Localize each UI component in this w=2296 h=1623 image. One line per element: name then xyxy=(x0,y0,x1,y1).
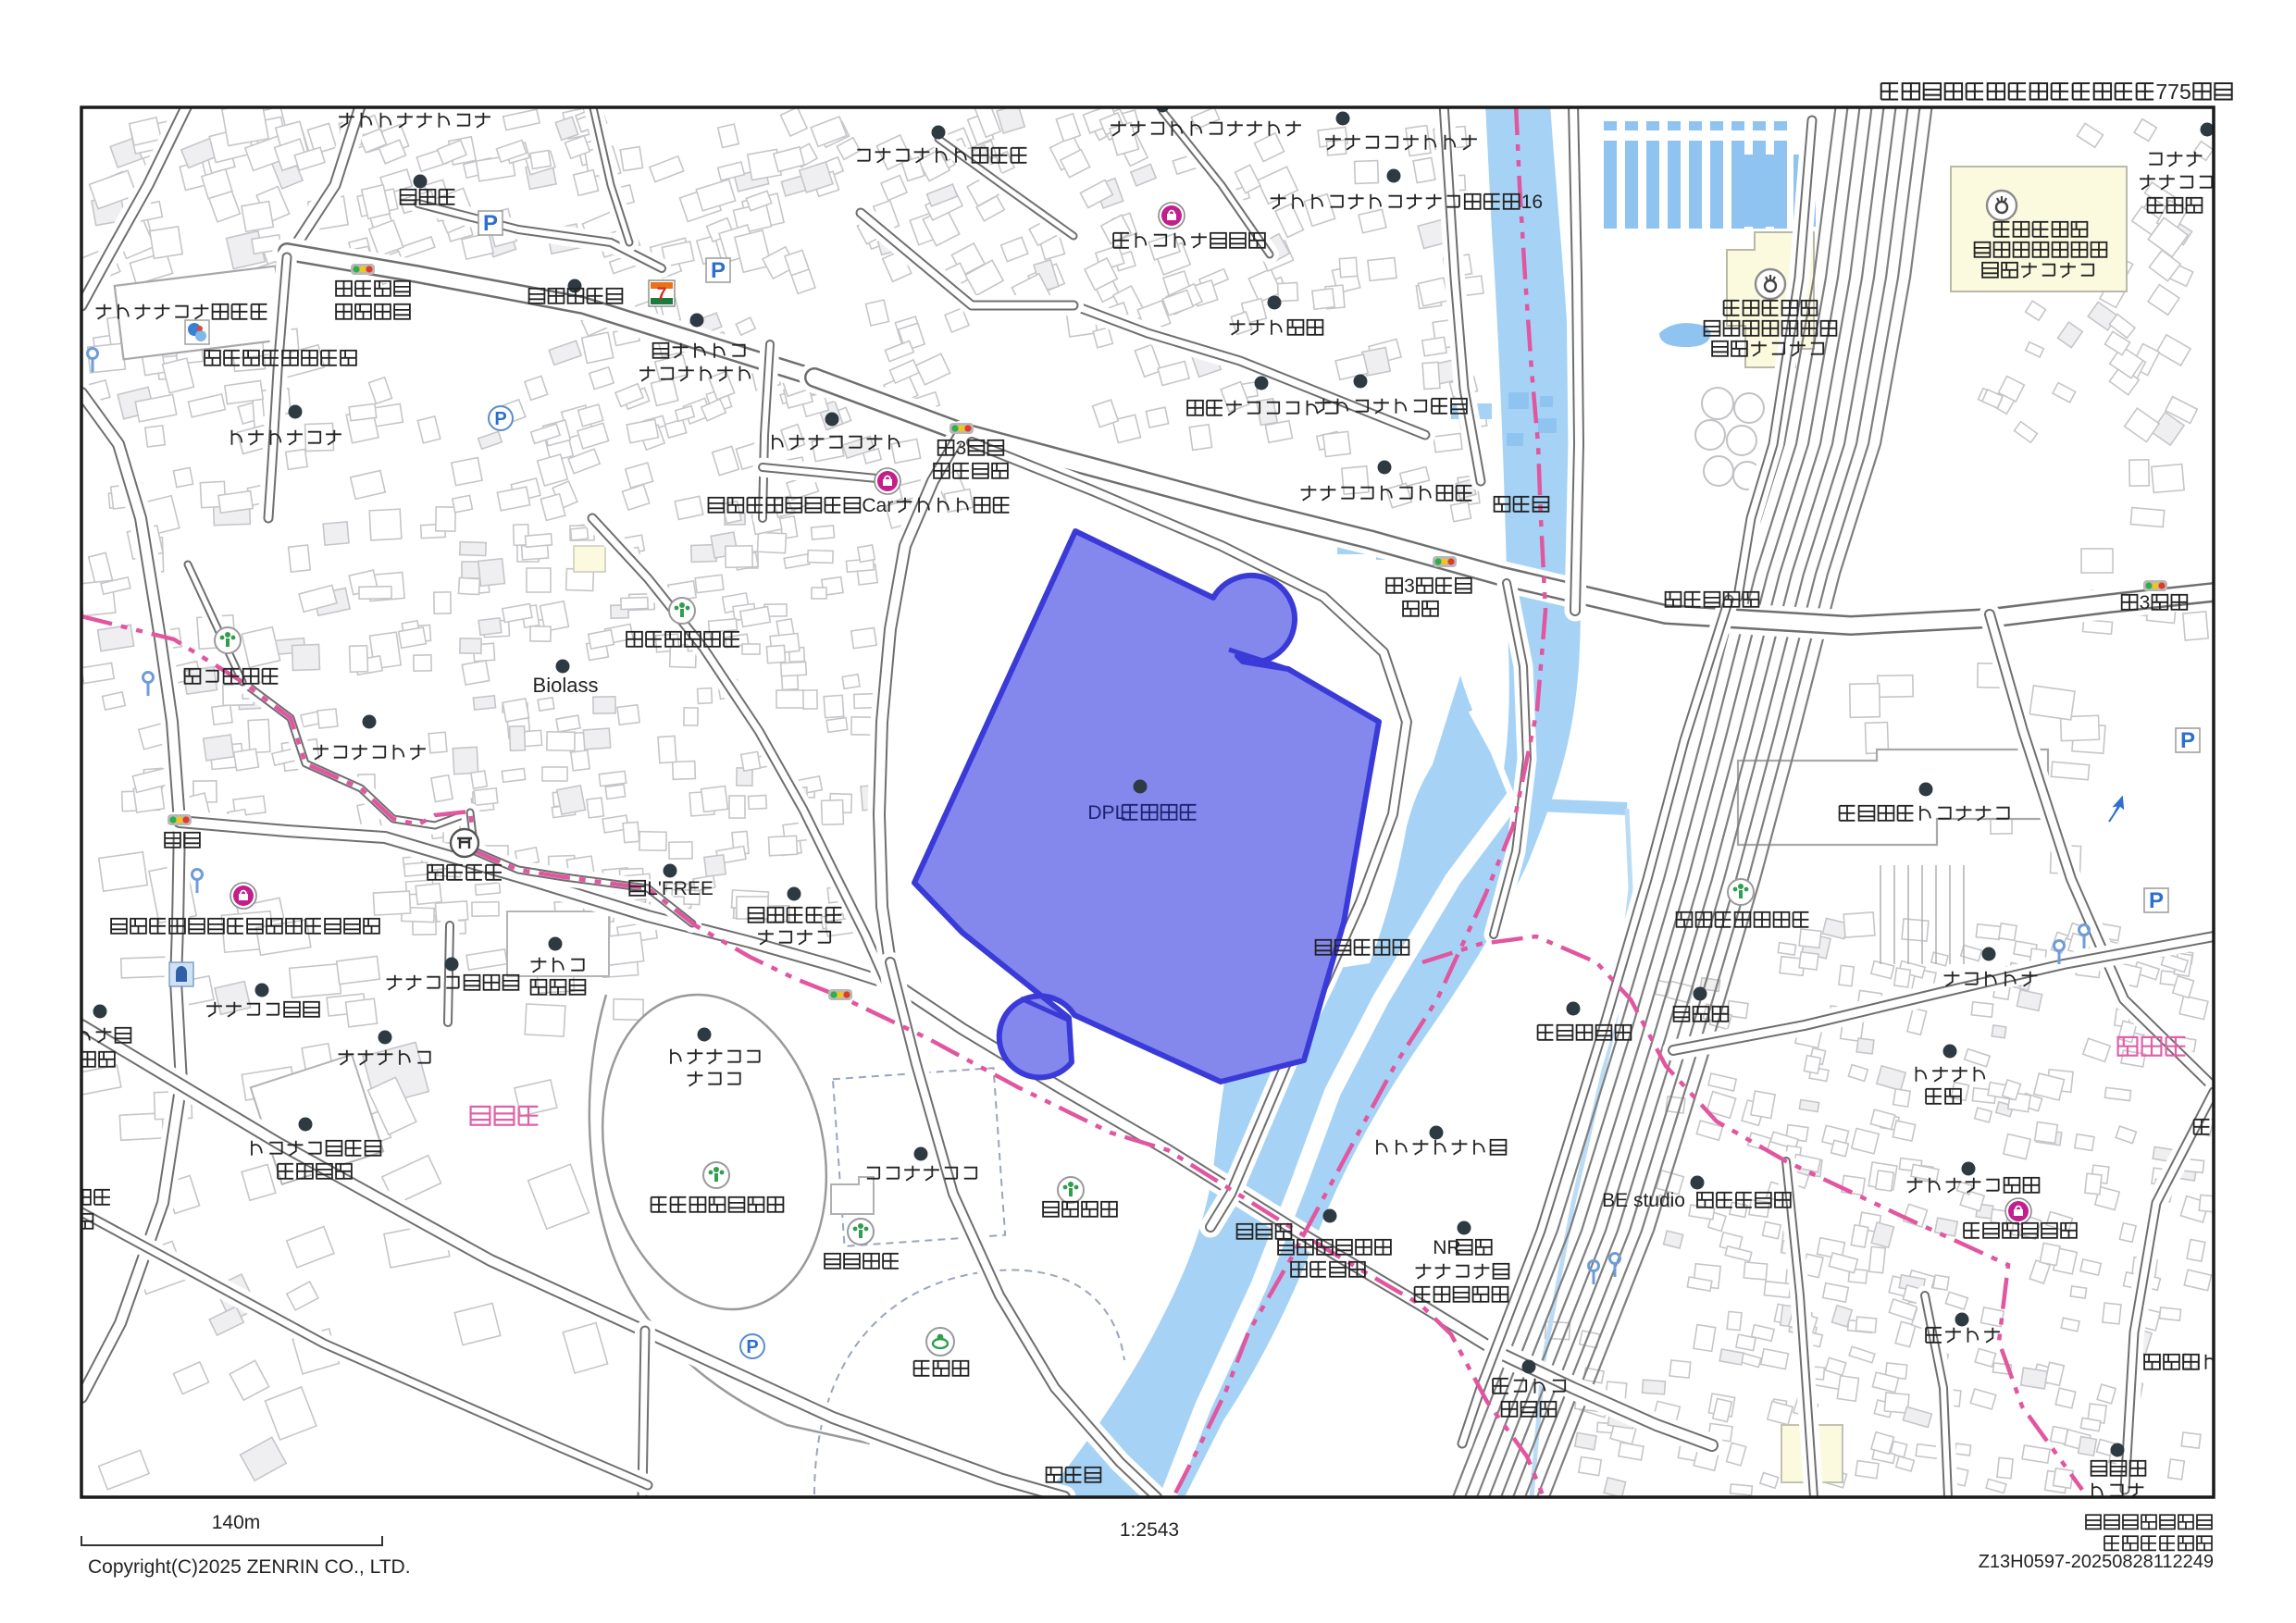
svg-text:BE studio: BE studio xyxy=(1602,1190,1685,1211)
svg-text:775: 775 xyxy=(2155,80,2191,104)
svg-text:DPL: DPL xyxy=(1087,802,1125,824)
svg-text:P: P xyxy=(711,258,726,283)
svg-text:7: 7 xyxy=(657,285,667,304)
svg-text:P: P xyxy=(494,409,506,429)
svg-text:Biolass: Biolass xyxy=(533,674,599,697)
svg-text:140m: 140m xyxy=(212,1512,261,1533)
svg-text:P: P xyxy=(483,211,498,236)
svg-text:1:2543: 1:2543 xyxy=(1120,1519,1179,1541)
svg-text:3: 3 xyxy=(2140,592,2151,613)
svg-text:P: P xyxy=(2180,728,2195,753)
svg-text:Car: Car xyxy=(862,495,893,516)
svg-text:3: 3 xyxy=(1404,576,1415,597)
svg-text:P: P xyxy=(746,1337,758,1357)
svg-text:3: 3 xyxy=(956,438,967,459)
svg-text:16: 16 xyxy=(1521,192,1543,213)
svg-text:P: P xyxy=(2149,888,2164,913)
svg-text:L'FREE: L'FREE xyxy=(647,878,714,899)
svg-text:Copyright(C)2025 ZENRIN CO., L: Copyright(C)2025 ZENRIN CO., LTD. xyxy=(88,1556,411,1578)
svg-text:Z13H0597-20250828112249: Z13H0597-20250828112249 xyxy=(1979,1552,2214,1572)
